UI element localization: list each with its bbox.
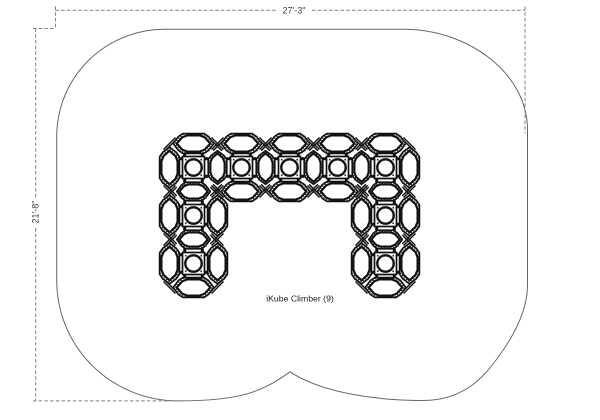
svg-text:27'-3": 27'-3" <box>283 6 306 16</box>
svg-text:21'-8": 21'-8" <box>31 201 41 224</box>
svg-text:iKube Climber (9): iKube Climber (9) <box>266 294 334 304</box>
